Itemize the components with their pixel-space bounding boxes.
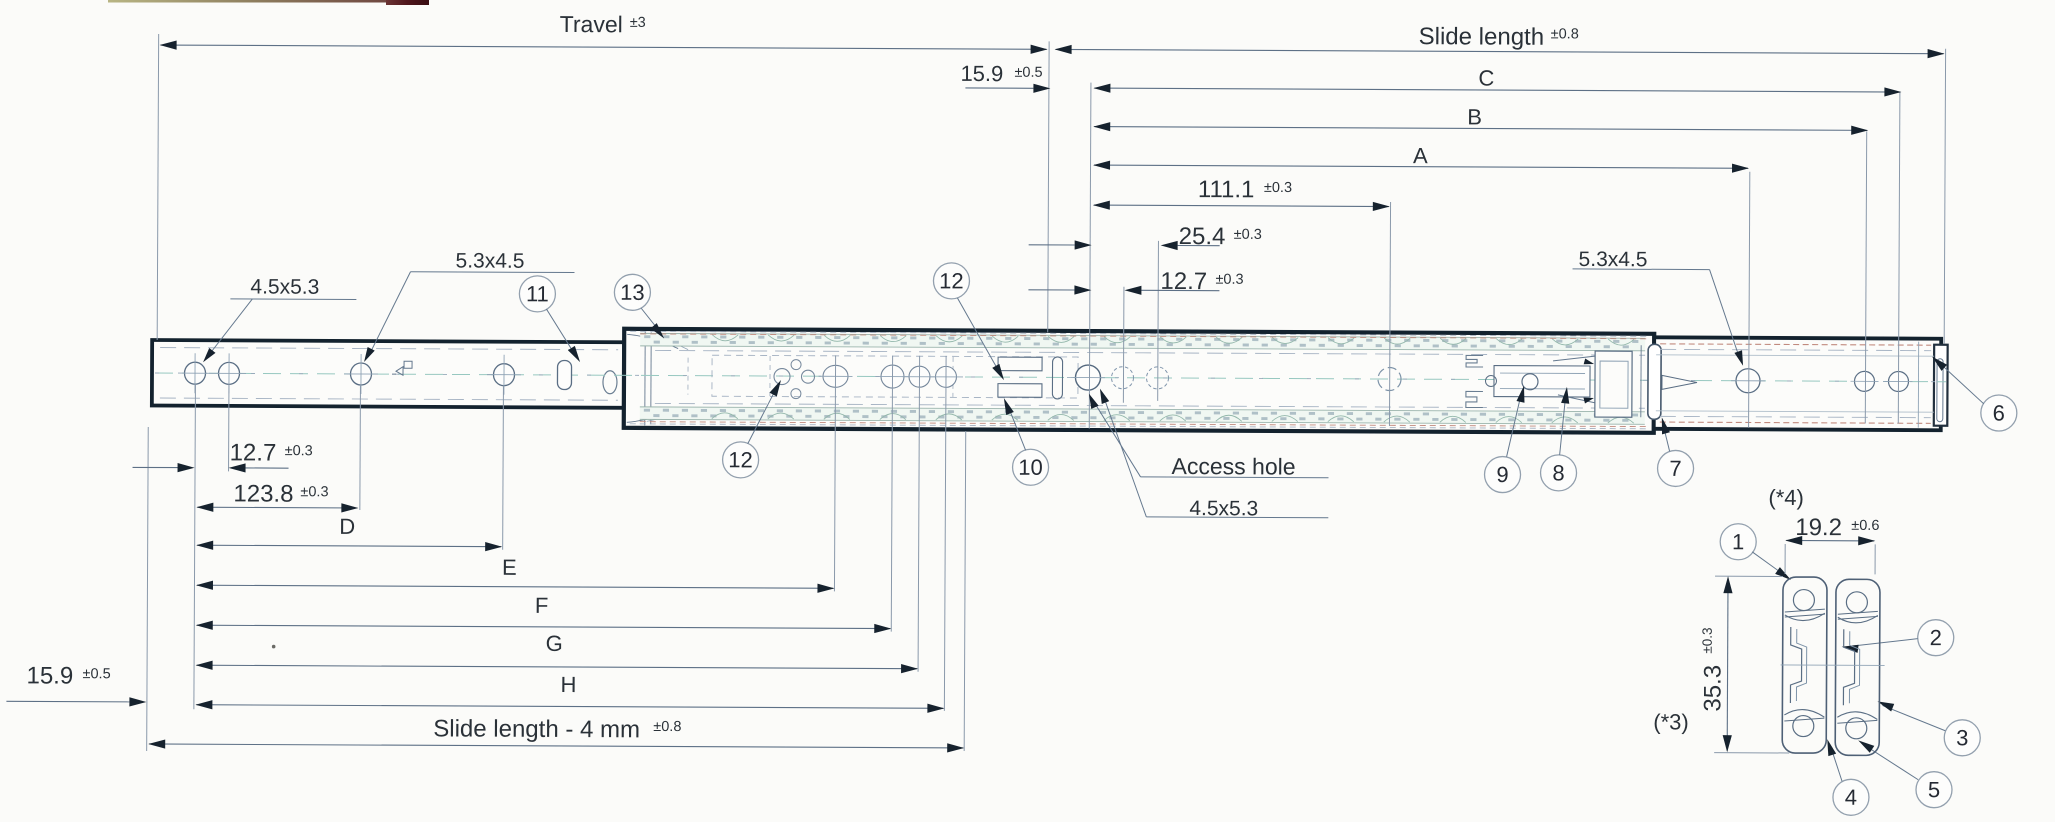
svg-text:±0.5: ±0.5 [82,666,110,682]
svg-text:12: 12 [939,268,964,293]
svg-text:8: 8 [1552,460,1564,485]
svg-text:Access hole: Access hole [1172,453,1296,480]
svg-text:10: 10 [1018,455,1043,480]
svg-text:Travel: Travel [560,11,623,37]
svg-text:123.8: 123.8 [233,480,293,507]
svg-text:E: E [502,555,517,580]
svg-text:3: 3 [1956,725,1968,750]
svg-text:Slide length: Slide length [1419,23,1545,51]
svg-text:±0.3: ±0.3 [300,484,328,500]
svg-text:12: 12 [728,447,753,472]
svg-text:5.3x4.5: 5.3x4.5 [456,249,525,272]
svg-text:±0.8: ±0.8 [1551,26,1579,42]
svg-text:±0.3: ±0.3 [1215,272,1243,288]
svg-text:4.5x5.3: 4.5x5.3 [250,275,319,298]
svg-text:±0.5: ±0.5 [1014,65,1042,81]
svg-text:B: B [1467,104,1482,129]
svg-text:±3: ±3 [630,15,646,31]
svg-text:7: 7 [1669,456,1681,481]
svg-text:12.7: 12.7 [1160,268,1207,295]
svg-text:±0.3: ±0.3 [1264,180,1292,196]
svg-text:D: D [339,514,355,539]
svg-text:2: 2 [1930,625,1942,650]
svg-text:25.4: 25.4 [1179,223,1226,250]
svg-text:Slide length - 4 mm: Slide length - 4 mm [433,715,640,743]
svg-text:A: A [1413,143,1428,168]
svg-text:111.1: 111.1 [1198,176,1255,203]
svg-text:4: 4 [1845,785,1857,810]
svg-text:9: 9 [1496,462,1508,487]
svg-text:35.3: 35.3 [1699,665,1726,712]
svg-text:19.2: 19.2 [1795,514,1842,541]
svg-text:5.3x4.5: 5.3x4.5 [1579,248,1648,271]
svg-text:(*3): (*3) [1653,709,1689,734]
svg-text:±0.3: ±0.3 [1700,627,1715,653]
svg-text:H: H [560,672,576,697]
svg-text:±0.3: ±0.3 [1234,227,1262,243]
svg-text:5: 5 [1928,777,1940,802]
svg-text:12.7: 12.7 [230,439,277,466]
svg-text:±0.8: ±0.8 [653,719,681,735]
svg-text:15.9: 15.9 [960,61,1003,86]
svg-text:C: C [1478,65,1494,90]
svg-text:F: F [535,593,549,618]
svg-text:11: 11 [526,281,549,306]
svg-text:4.5x5.3: 4.5x5.3 [1189,497,1258,520]
svg-text:(*4): (*4) [1768,485,1804,510]
svg-text:±0.6: ±0.6 [1851,518,1879,534]
svg-text:13: 13 [620,280,645,305]
svg-text:G: G [546,631,563,656]
svg-text:1: 1 [1732,529,1744,554]
svg-text:15.9: 15.9 [26,662,73,689]
svg-text:±0.3: ±0.3 [285,443,313,459]
svg-text:6: 6 [1993,400,2005,425]
